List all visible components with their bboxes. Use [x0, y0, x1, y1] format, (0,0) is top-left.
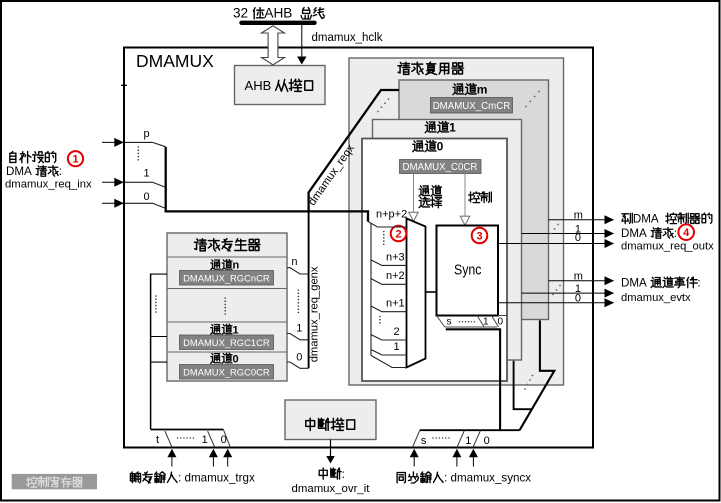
svg-text:m: m	[574, 210, 583, 222]
svg-text:1: 1	[483, 317, 489, 328]
svg-text:1: 1	[394, 341, 400, 353]
svg-text:2: 2	[395, 229, 401, 241]
svg-text:n+p+2: n+p+2	[376, 208, 407, 220]
svg-text:1: 1	[296, 323, 302, 335]
svg-text:dmamux_hclk: dmamux_hclk	[312, 32, 383, 44]
svg-text:t: t	[156, 434, 159, 446]
svg-text:0: 0	[296, 351, 302, 363]
svg-text:DMAMUX_RGCnCR: DMAMUX_RGCnCR	[183, 272, 270, 283]
svg-text:DMAMUX_RGC0CR: DMAMUX_RGC0CR	[183, 366, 270, 377]
svg-text:s: s	[421, 435, 427, 447]
svg-text:dmamux_req_genx: dmamux_req_genx	[308, 266, 320, 362]
svg-text:1: 1	[202, 434, 208, 446]
svg-text:4: 4	[683, 227, 690, 239]
svg-text:m: m	[574, 271, 583, 283]
svg-text:: dmamux_syncx: : dmamux_syncx	[444, 472, 531, 485]
svg-text:3: 3	[476, 231, 482, 243]
svg-text:m: m	[477, 83, 488, 97]
svg-text:0: 0	[498, 317, 504, 328]
svg-text::: :	[59, 165, 62, 178]
svg-text:DMAMUX_RGC1CR: DMAMUX_RGC1CR	[183, 337, 270, 348]
svg-text:0: 0	[437, 140, 444, 154]
svg-text:dmamux_evtx: dmamux_evtx	[621, 292, 691, 304]
svg-text:dmamux_ovr_it: dmamux_ovr_it	[292, 483, 371, 495]
svg-text:0: 0	[232, 353, 238, 365]
svg-text:DMA: DMA	[6, 165, 32, 178]
svg-text:Sync: Sync	[454, 263, 482, 279]
svg-text:DMA: DMA	[621, 227, 647, 240]
svg-text:2: 2	[394, 326, 400, 338]
svg-text:AHB: AHB	[245, 78, 272, 93]
svg-text::: :	[342, 467, 345, 481]
svg-text:dmamux_req_outx: dmamux_req_outx	[621, 241, 714, 253]
svg-text:1: 1	[144, 168, 150, 180]
svg-text:0: 0	[575, 292, 581, 304]
svg-text:n: n	[232, 260, 239, 272]
svg-text:DMA: DMA	[621, 277, 647, 290]
svg-text::: :	[697, 277, 700, 290]
svg-text:1: 1	[72, 154, 78, 166]
svg-text:p: p	[144, 128, 150, 140]
svg-text:n+2: n+2	[386, 270, 405, 282]
svg-text:dmamux_req_inx: dmamux_req_inx	[5, 178, 92, 190]
svg-text:DMAMUX_C0CR: DMAMUX_C0CR	[403, 162, 478, 173]
svg-text:s: s	[447, 317, 452, 328]
svg-text:AHB: AHB	[264, 6, 292, 21]
svg-text:DMA: DMA	[633, 213, 659, 226]
svg-text:0: 0	[575, 232, 581, 244]
svg-text:n+3: n+3	[386, 252, 405, 264]
svg-text:1: 1	[449, 121, 456, 135]
svg-text:0: 0	[144, 191, 150, 203]
svg-text:: dmamux_trgx: : dmamux_trgx	[178, 472, 255, 485]
svg-text:n: n	[291, 256, 297, 268]
svg-text:1: 1	[465, 435, 471, 447]
svg-text:0: 0	[484, 435, 490, 447]
svg-text:32: 32	[233, 6, 248, 21]
svg-text:DMAMUX_CmCR: DMAMUX_CmCR	[433, 101, 511, 112]
svg-text:1: 1	[232, 324, 238, 336]
svg-text:DMAMUX: DMAMUX	[136, 51, 214, 71]
svg-text:n+1: n+1	[386, 298, 405, 310]
svg-text::: :	[674, 227, 677, 240]
svg-text:0: 0	[221, 434, 227, 446]
